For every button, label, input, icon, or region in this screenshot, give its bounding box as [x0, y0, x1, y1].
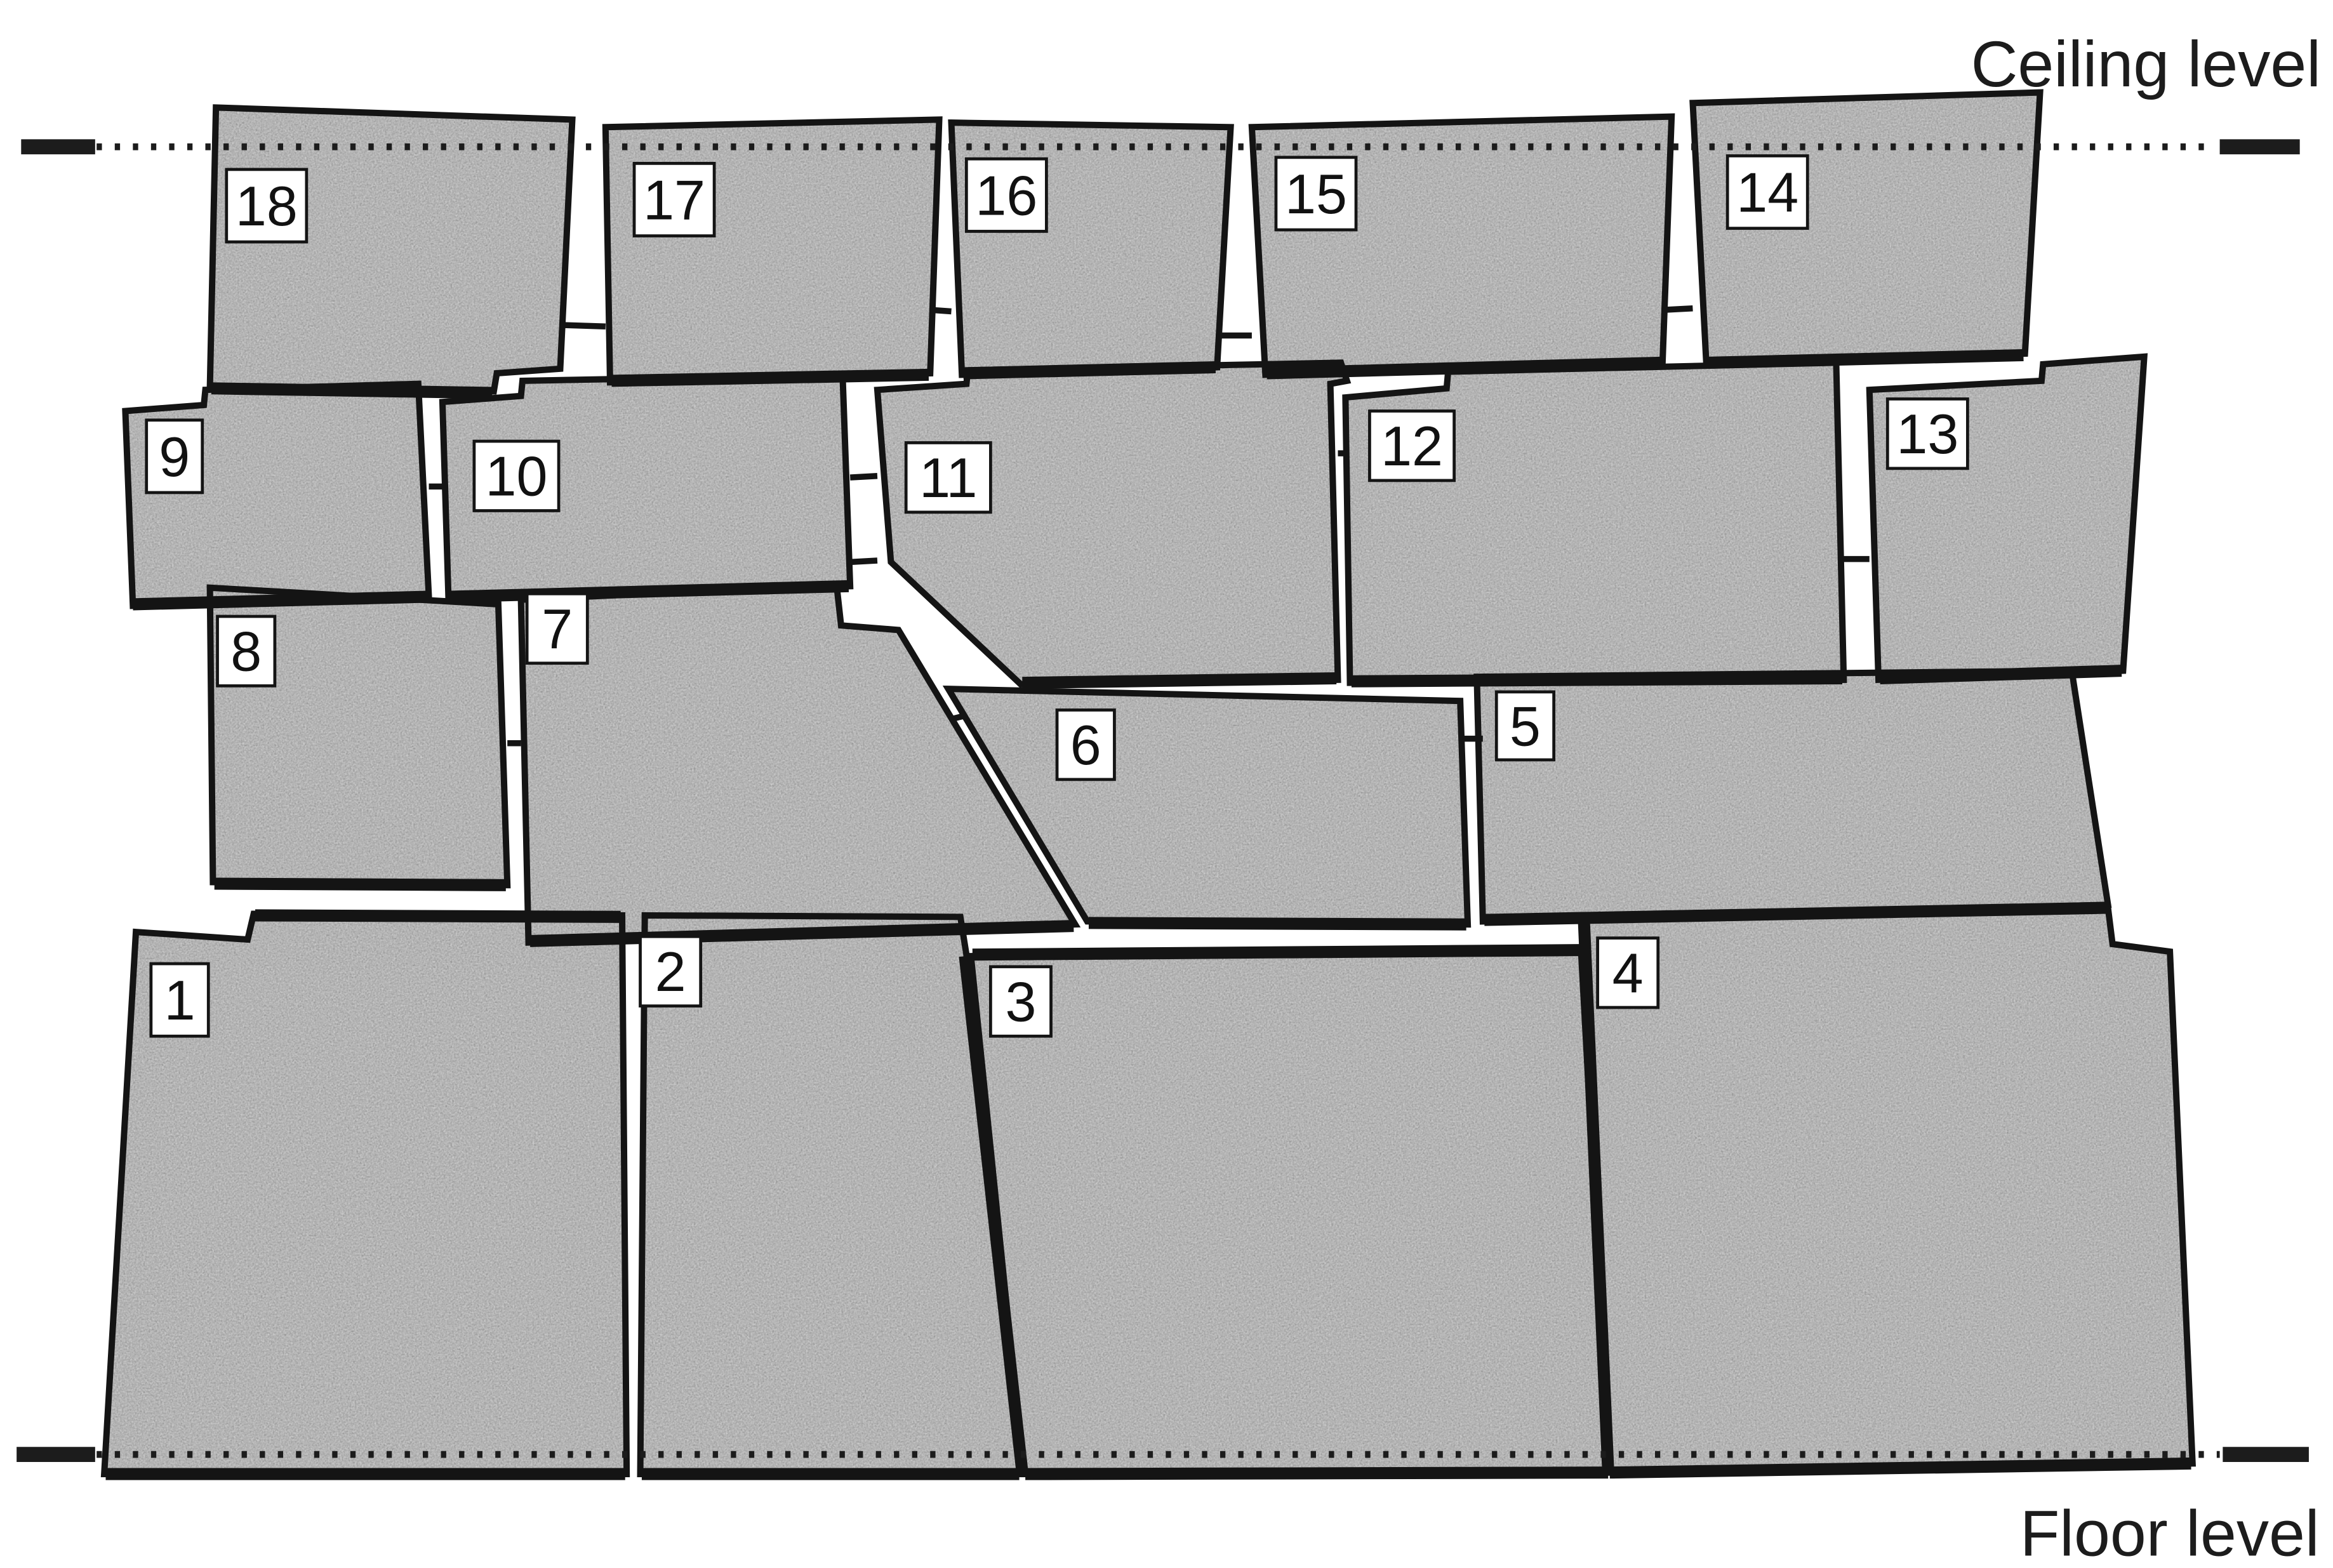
panel-6-label: 6	[1057, 710, 1114, 779]
panel-3-label: 3	[990, 967, 1051, 1036]
panel-9-number: 9	[159, 425, 190, 488]
panel-16-number: 16	[975, 164, 1037, 227]
panel-10-number: 10	[486, 445, 548, 508]
panel-8-label: 8	[218, 616, 275, 686]
panel-texture-light	[0, 0, 2333, 1567]
panel-3-number: 3	[1005, 970, 1036, 1033]
figure-canvas: 181716151491011121387651234 Ceiling leve…	[0, 0, 2333, 1568]
thick-joint-line	[964, 367, 1216, 373]
panel-11-label: 11	[906, 442, 990, 512]
thick-joint-line	[1708, 355, 2023, 362]
panel-12-number: 12	[1381, 415, 1443, 477]
thick-joint-line	[215, 884, 506, 885]
gap-tie-line	[850, 561, 877, 562]
panel-5-number: 5	[1510, 694, 1541, 757]
thick-joint-line	[1880, 671, 2122, 679]
panel-5-label: 5	[1496, 692, 1553, 760]
panel-2-label: 2	[641, 936, 701, 1006]
panel-1-label: 1	[151, 964, 208, 1036]
thick-joint-line	[133, 597, 427, 604]
panel-7-number: 7	[542, 597, 573, 660]
gap-tie-line	[930, 310, 951, 311]
thick-joint-line	[611, 375, 929, 381]
gap-tie-line	[560, 325, 605, 326]
panel-9-label: 9	[147, 420, 203, 493]
panel-7-label: 7	[527, 594, 587, 663]
panel-15-number: 15	[1285, 163, 1347, 225]
panel-12-label: 12	[1369, 411, 1454, 480]
thick-joint-line	[1089, 923, 1466, 924]
panel-17-number: 17	[643, 168, 705, 231]
thick-joint-line	[211, 389, 492, 393]
panel-17-label: 17	[634, 163, 714, 236]
gap-tie-line	[850, 476, 877, 477]
thick-joint-line	[1025, 1473, 1608, 1474]
panel-18-number: 18	[236, 175, 298, 237]
panel-14-label: 14	[1727, 156, 1807, 228]
panel-diagram: 181716151491011121387651234 Ceiling leve…	[0, 0, 2333, 1568]
panel-15-label: 15	[1276, 157, 1356, 230]
panel-2-number: 2	[655, 940, 686, 1003]
panel-6-number: 6	[1070, 714, 1101, 776]
floor-level-label: Floor level	[2020, 1496, 2320, 1568]
panel-18-label: 18	[227, 169, 307, 242]
panel-4-label: 4	[1598, 938, 1658, 1007]
gap-tie-line	[952, 716, 964, 719]
thick-joint-line	[255, 915, 621, 917]
thick-joint-line	[1352, 678, 1842, 681]
panel-4-number: 4	[1612, 941, 1644, 1004]
panel-16-label: 16	[966, 159, 1046, 231]
panel-13-number: 13	[1896, 402, 1958, 465]
thick-joint-line	[973, 950, 1579, 955]
panel-13-label: 13	[1887, 399, 1967, 468]
ceiling-level-label: Ceiling level	[1971, 27, 2321, 100]
panel-8-number: 8	[230, 620, 262, 683]
gap-tie-line	[1664, 309, 1692, 310]
panel-10-label: 10	[474, 441, 559, 510]
panel-11-number: 11	[919, 446, 977, 509]
panel-1-number: 1	[164, 969, 196, 1032]
panel-14-number: 14	[1736, 161, 1798, 223]
thick-joint-line	[1022, 678, 1336, 682]
